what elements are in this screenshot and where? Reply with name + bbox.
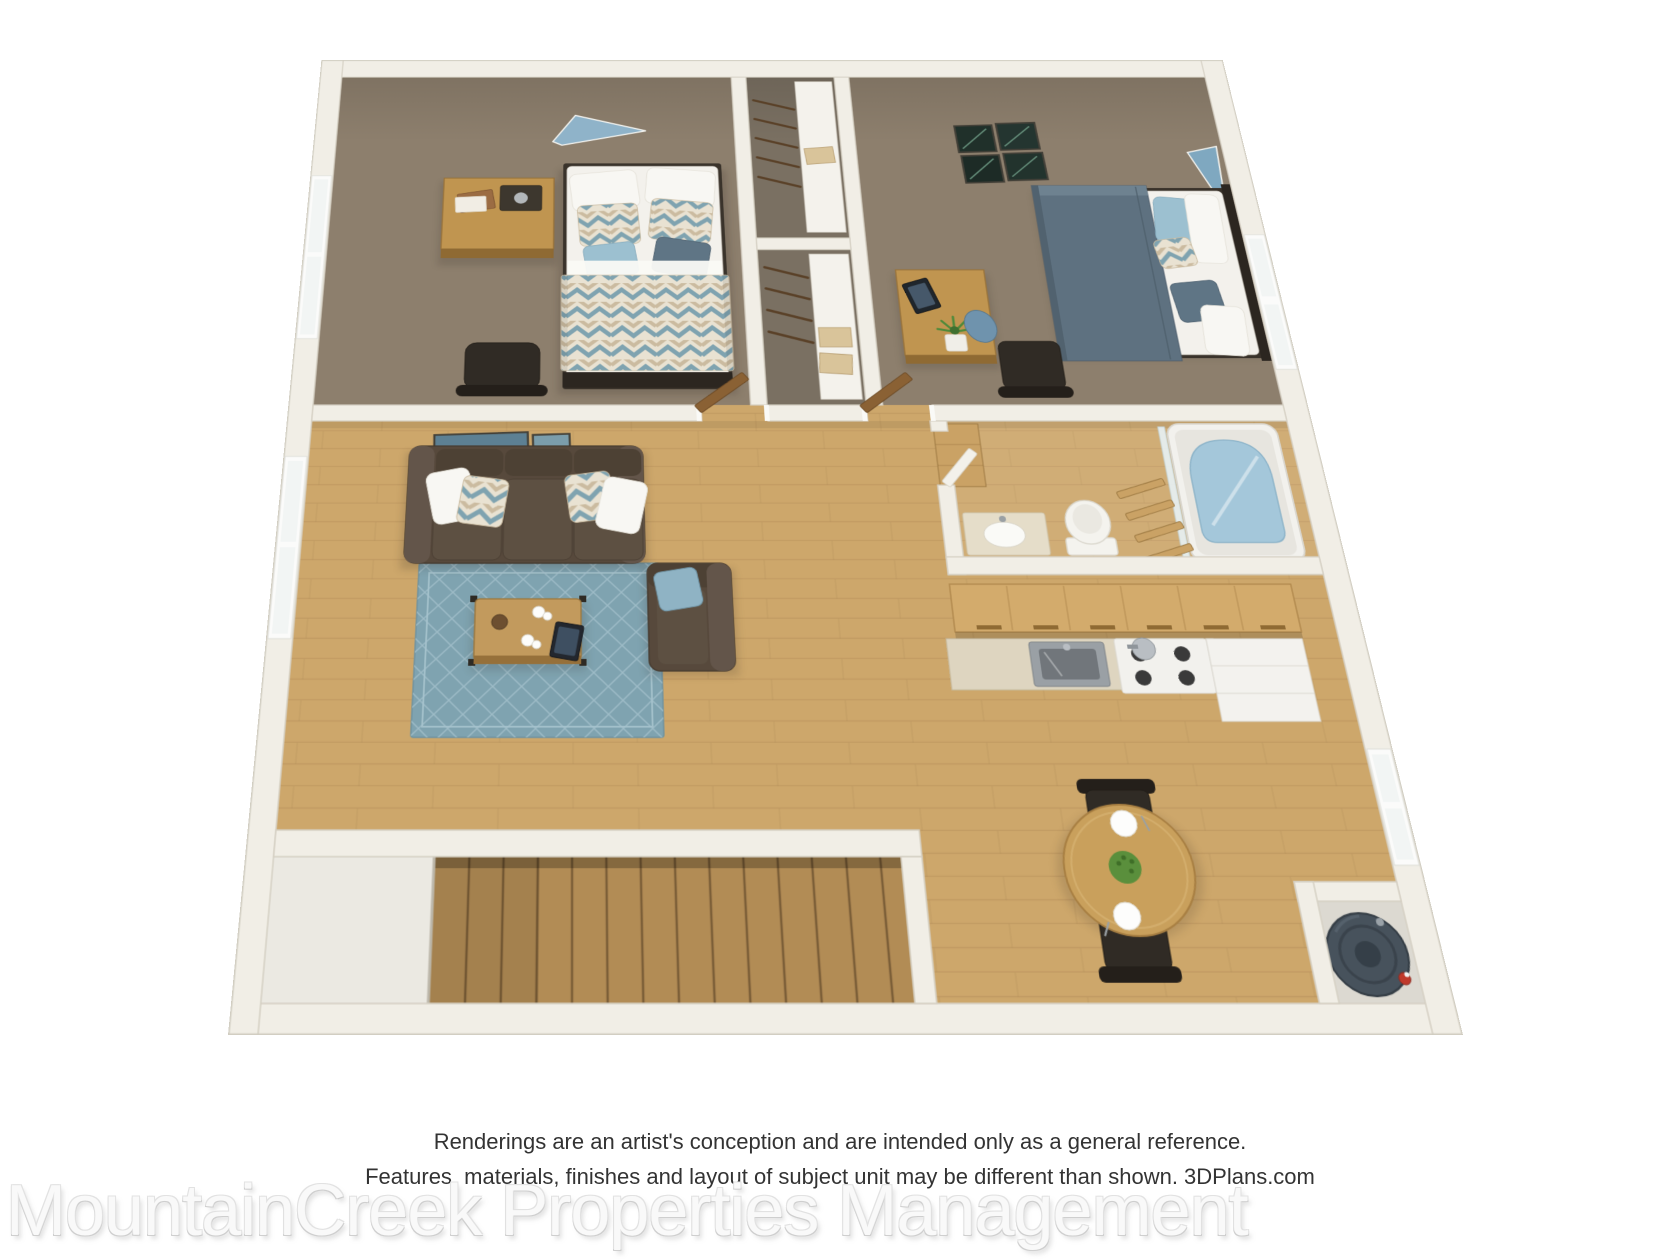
floorplan-render <box>228 60 1463 1035</box>
blue-pillow <box>653 566 705 612</box>
floorplan-svg <box>228 60 1463 1035</box>
wall-north <box>320 60 1227 77</box>
wall-mid-left <box>312 405 702 421</box>
storage-box <box>804 147 836 165</box>
sofa <box>400 446 651 570</box>
half-wall-stairs <box>274 830 922 857</box>
linen-cabinet <box>933 424 986 487</box>
floorplan-3d-wrapper <box>228 0 1463 1035</box>
chevron-pillow <box>577 203 641 247</box>
floorplan-page: Renderings are an artist's conception an… <box>0 0 1680 1260</box>
desk-left-bedroom <box>437 178 557 266</box>
stove <box>1113 638 1216 694</box>
chevron-pillow <box>648 198 713 244</box>
upper-cabinets-bar <box>949 584 1303 639</box>
wall-mid-right <box>932 405 1287 421</box>
wall-bathroom-west-stub <box>930 421 948 431</box>
ambient-shadow-top <box>336 77 1220 141</box>
cup <box>543 612 552 620</box>
wall-closet-divider <box>756 238 851 250</box>
stair-landing <box>261 857 435 1004</box>
wall-mid-center <box>767 405 868 421</box>
wall-bathroom-south <box>946 557 1323 575</box>
bathroom-sink <box>962 513 1051 555</box>
paper <box>455 196 486 212</box>
coffee-table <box>468 596 587 671</box>
footboard <box>562 372 733 388</box>
cup <box>532 640 541 648</box>
chevron-pillow <box>456 475 510 528</box>
midwall-floor-shadow <box>311 421 1289 428</box>
staircase <box>429 857 915 1004</box>
storage-box <box>820 353 853 375</box>
watermark-text: MountainCreek Properties Management <box>6 1170 1248 1252</box>
storage-box <box>818 328 852 347</box>
folded-sheet <box>568 261 723 277</box>
pillow <box>1200 305 1251 357</box>
chevron-blanket <box>561 275 734 371</box>
bed-right <box>1031 184 1272 361</box>
kitchen-sink <box>1028 642 1110 686</box>
bowl <box>491 614 507 629</box>
wall-south <box>228 1003 1463 1035</box>
disclaimer-line1: Renderings are an artist's conception an… <box>0 1124 1680 1159</box>
desk-chair-left <box>455 343 548 397</box>
refrigerator-cabinet <box>1206 639 1321 722</box>
armchair <box>644 563 740 676</box>
bed-left <box>558 163 739 395</box>
